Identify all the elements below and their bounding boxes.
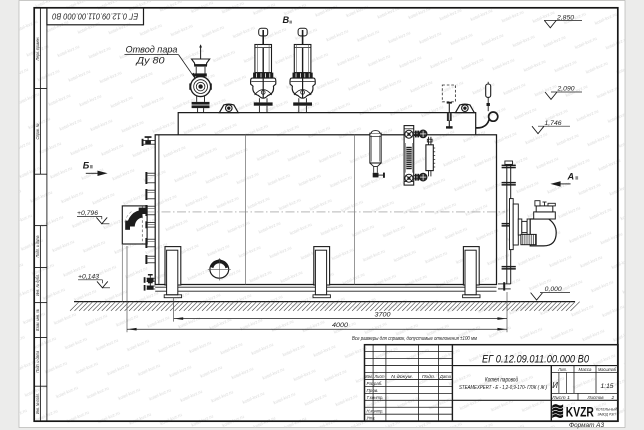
svg-text:4000: 4000 bbox=[332, 322, 349, 329]
svg-text:Формат А3: Формат А3 bbox=[569, 422, 605, 429]
svg-text:2,090: 2,090 bbox=[556, 86, 575, 93]
svg-text:Н.контр.: Н.контр. bbox=[367, 409, 384, 414]
svg-text:Пров.: Пров. bbox=[367, 388, 379, 393]
svg-text:Т.контр.: Т.контр. bbox=[367, 395, 384, 400]
svg-text:Разраб.: Разраб. bbox=[367, 381, 383, 386]
svg-text:Справ. №: Справ. № bbox=[35, 123, 40, 139]
svg-text:2: 2 bbox=[610, 395, 614, 401]
svg-text:Взам. инв. №: Взам. инв. № bbox=[35, 309, 40, 331]
svg-text:3700: 3700 bbox=[375, 312, 392, 319]
svg-text:КОТЕЛЬНЫЙ: КОТЕЛЬНЫЙ bbox=[596, 407, 617, 411]
svg-text:Масштаб: Масштаб bbox=[598, 367, 616, 372]
svg-text:И: И bbox=[552, 381, 558, 390]
svg-text:Инв. № дубл.: Инв. № дубл. bbox=[35, 274, 40, 296]
svg-text:Подп. и дата: Подп. и дата bbox=[35, 235, 40, 258]
svg-text:Дата: Дата bbox=[439, 374, 451, 379]
svg-text:Подп.: Подп. bbox=[422, 374, 435, 379]
svg-text:Инв. № подл.: Инв. № подл. bbox=[35, 393, 40, 414]
svg-text:Отвод пара: Отвод пара bbox=[126, 44, 178, 54]
svg-text:+0,796: +0,796 bbox=[77, 210, 99, 217]
svg-text:Все размеры для справок, допус: Все размеры для справок, допустимые откл… bbox=[352, 336, 477, 342]
svg-text:Лист 1: Лист 1 bbox=[551, 395, 570, 401]
svg-text:Лит.: Лит. bbox=[557, 367, 567, 372]
svg-text:Изм.: Изм. bbox=[365, 374, 373, 379]
svg-text:Масса: Масса bbox=[579, 367, 592, 372]
svg-text:Ду 80: Ду 80 bbox=[135, 55, 164, 65]
svg-text:Утв.: Утв. bbox=[367, 416, 376, 421]
svg-text:+0,143: +0,143 bbox=[78, 273, 100, 280]
svg-text:ЕГ 0.12.09.011.00.000 В0: ЕГ 0.12.09.011.00.000 В0 bbox=[482, 354, 589, 366]
svg-text:Котел паровой: Котел паровой bbox=[485, 376, 519, 383]
svg-text:Лист: Лист bbox=[374, 374, 385, 379]
svg-text:0,000: 0,000 bbox=[545, 286, 563, 293]
svg-text:Перв. примен.: Перв. примен. bbox=[35, 37, 40, 61]
svg-text:STEAMEXPERT - Е - 1,2-0,9-170-: STEAMEXPERT - Е - 1,2-0,9-170- ГЛЖ ( Ж ) bbox=[459, 385, 547, 391]
svg-text:ЕГ 0.12.09.011.00.000 В0: ЕГ 0.12.09.011.00.000 В0 bbox=[52, 11, 138, 20]
svg-text:Б: Б bbox=[83, 161, 90, 171]
svg-text:N докум.: N докум. bbox=[391, 374, 413, 379]
svg-text:ЗАВОД РЭП: ЗАВОД РЭП bbox=[598, 412, 616, 416]
svg-text:KVZR: KVZR bbox=[566, 405, 594, 420]
svg-text:А: А bbox=[566, 172, 574, 182]
svg-text:1:15: 1:15 bbox=[601, 383, 614, 390]
svg-text:В: В bbox=[282, 15, 289, 25]
svg-text:Подп. и дата: Подп. и дата bbox=[35, 350, 40, 373]
svg-text:Листов: Листов bbox=[587, 395, 604, 401]
